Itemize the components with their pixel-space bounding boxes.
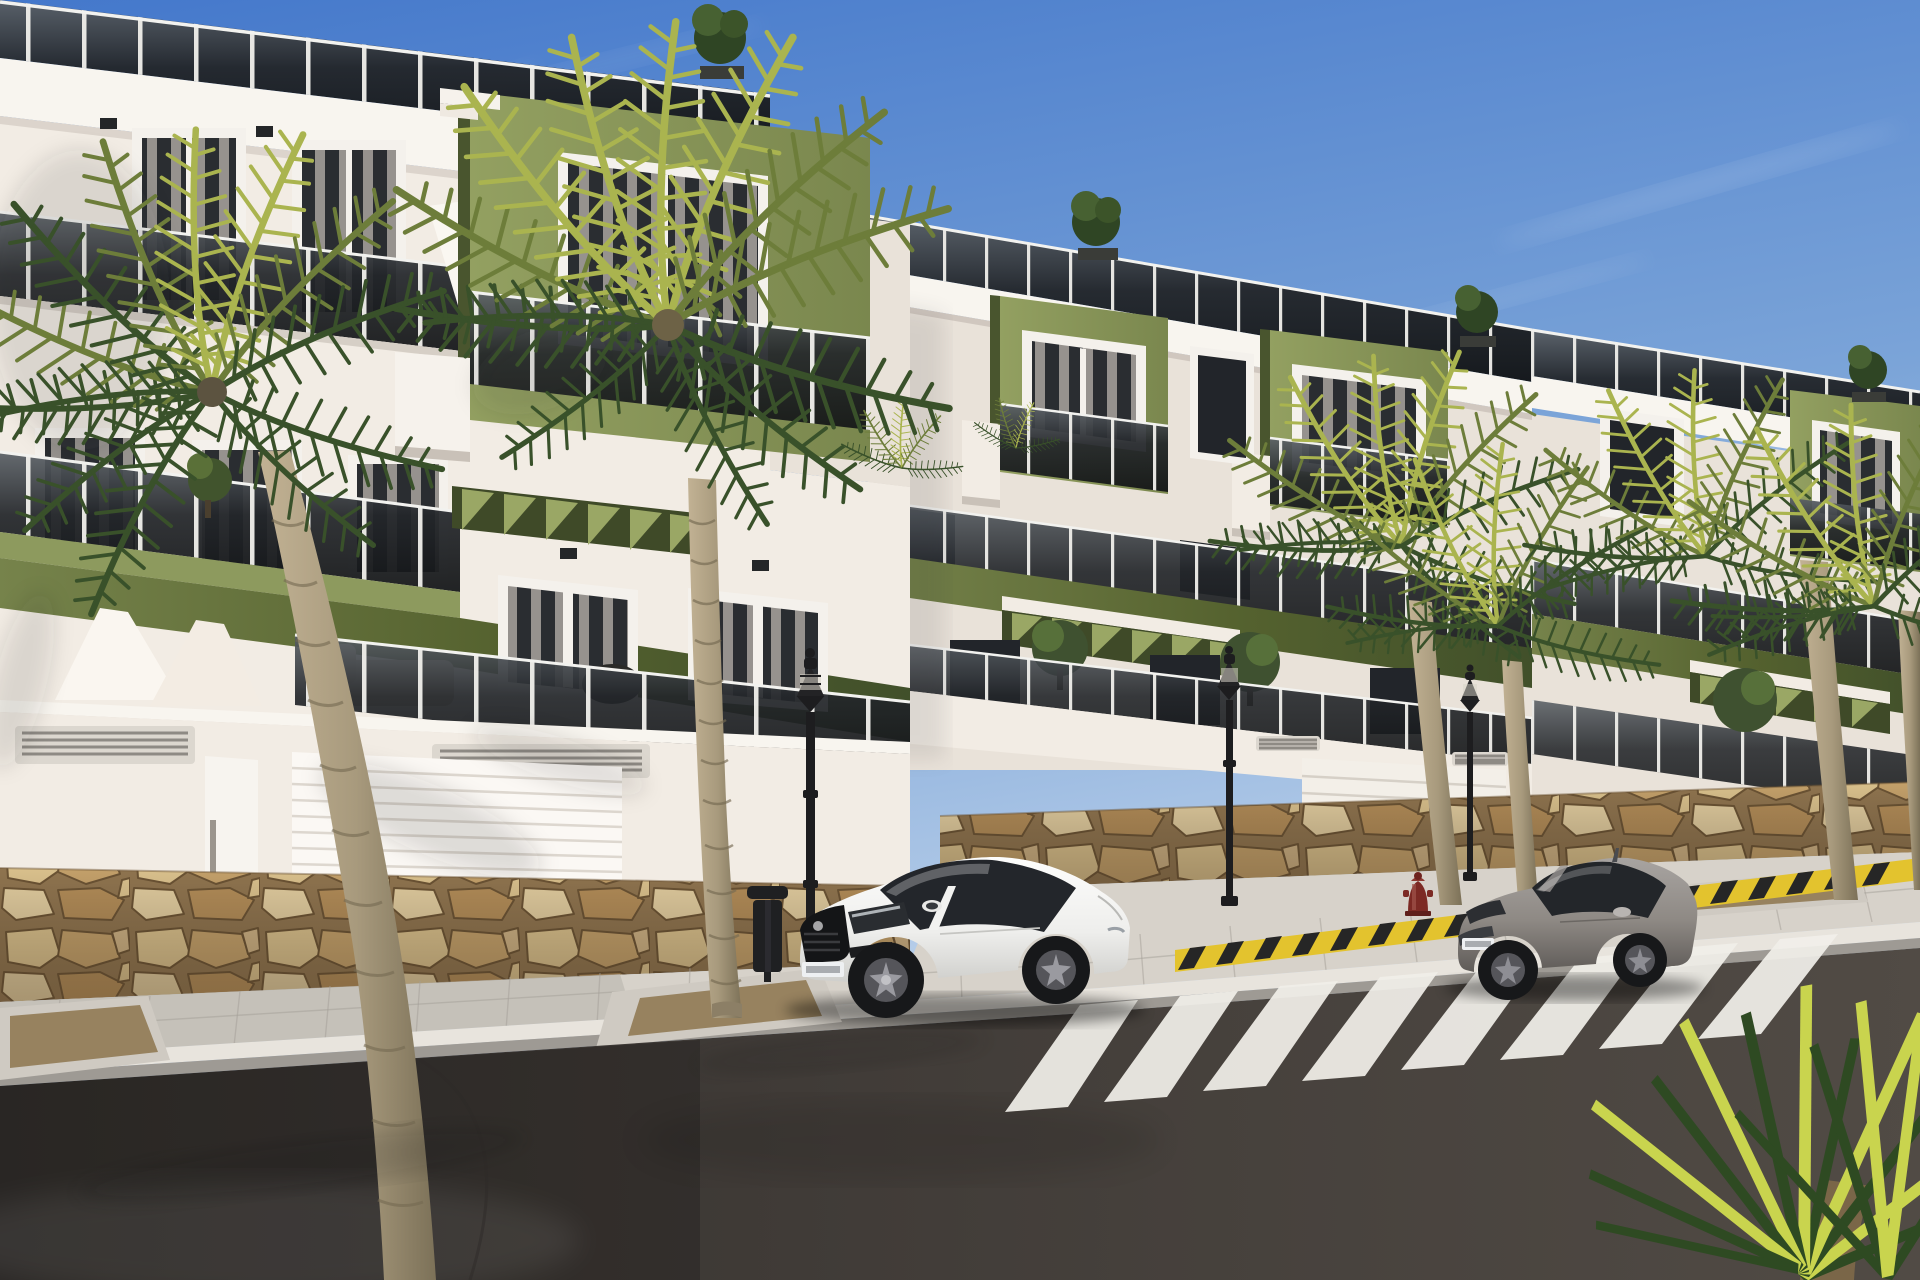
architectural-render [0,0,1920,1280]
wall-lamp [256,126,273,137]
wall-lamp [100,118,117,129]
car-shadow [785,994,1145,1026]
left-apartment-block [0,0,910,950]
scene-canvas [0,0,1920,1280]
wall-lamp [752,560,769,571]
wall-lamp [560,548,577,559]
rooftop-shrub-1 [1071,191,1121,260]
right-window-1 [1190,346,1254,466]
rooftop-shrub-left [692,4,748,79]
car-mirror [1613,907,1631,917]
vent-grille-left-1 [15,726,195,764]
green-accent-box-1 [962,295,1168,508]
